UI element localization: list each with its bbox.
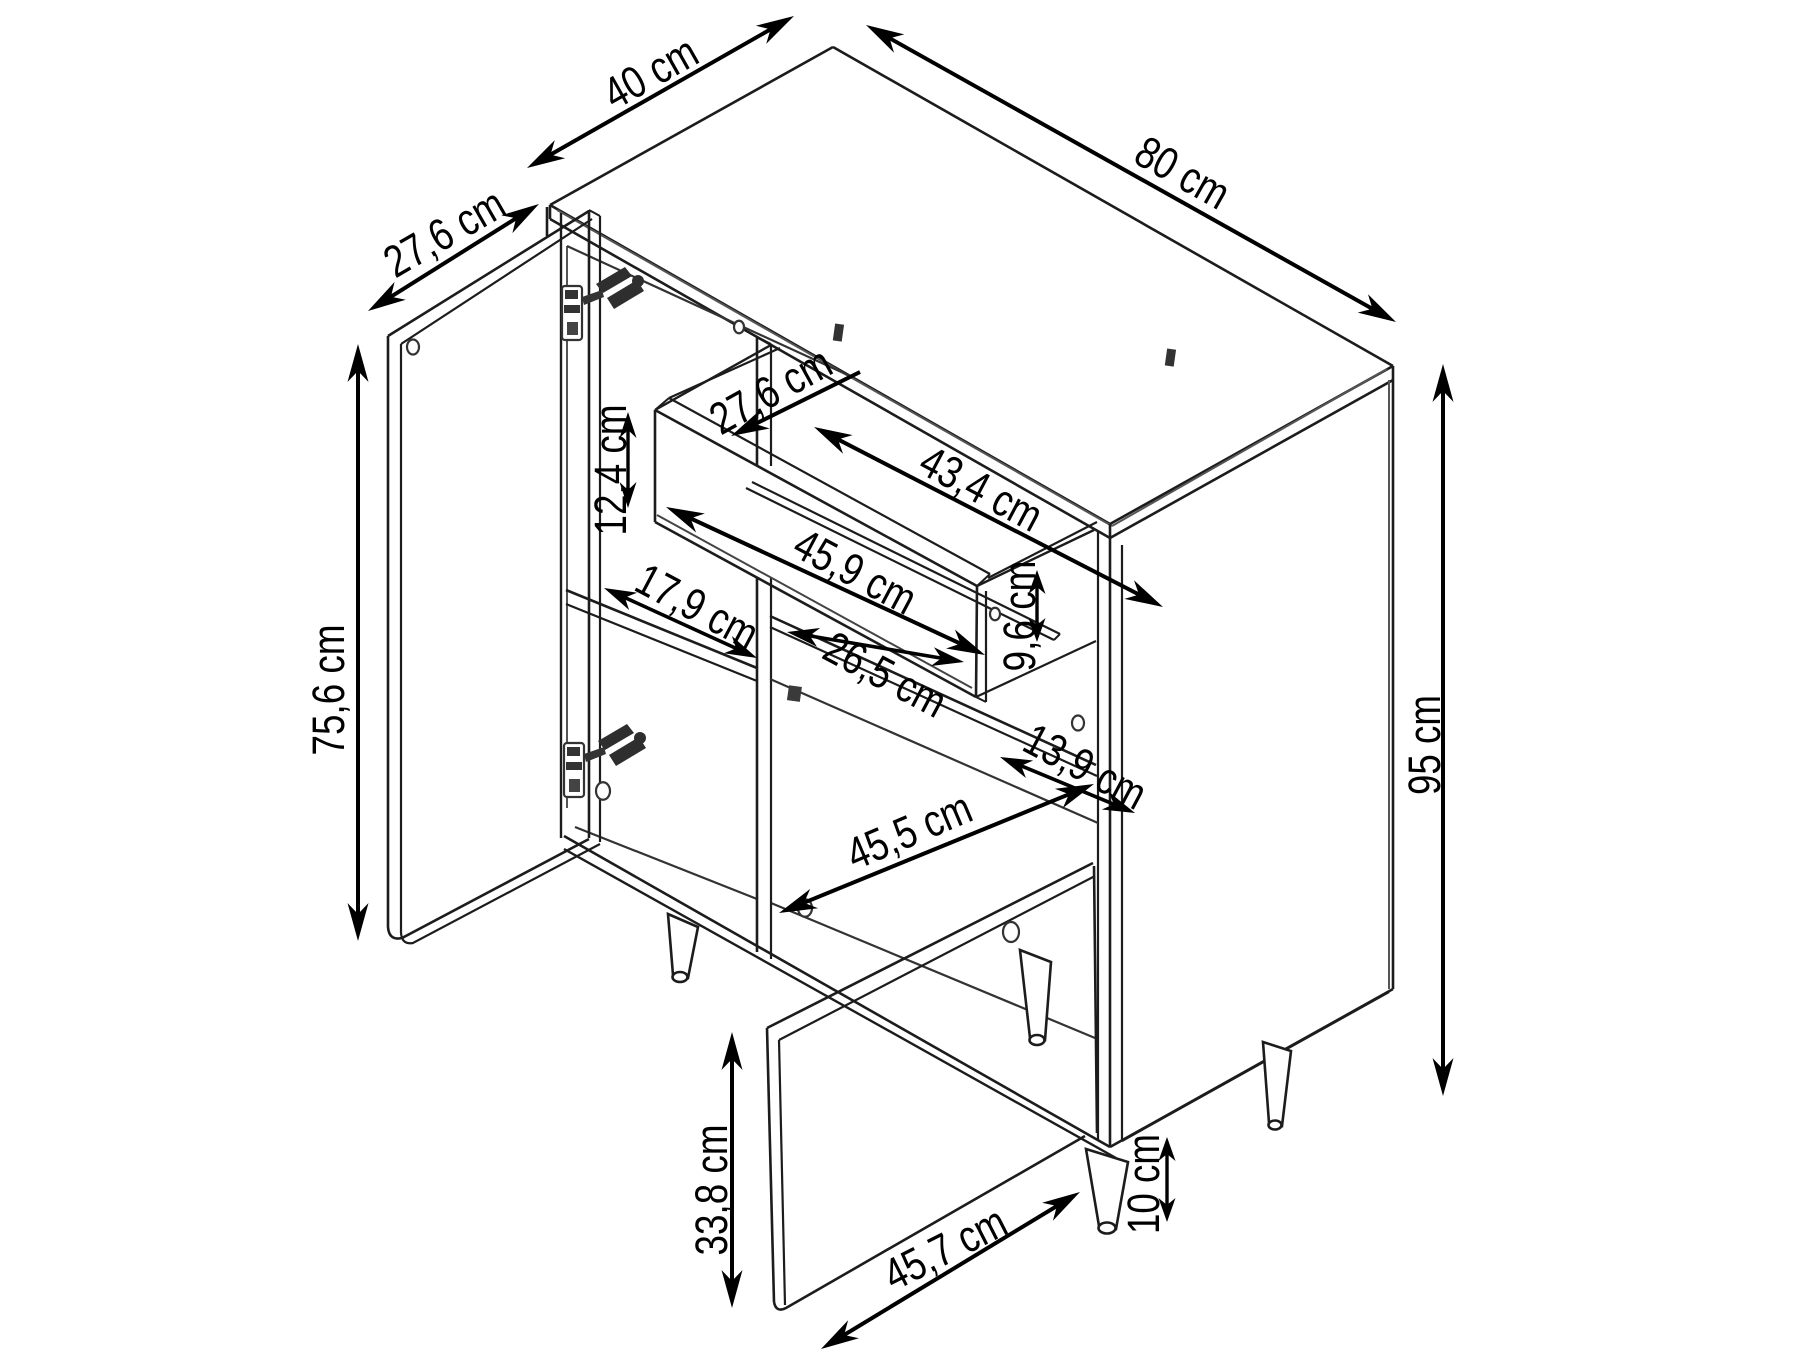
svg-text:33,8 cm: 33,8 cm bbox=[686, 1125, 737, 1256]
svg-text:10 cm: 10 cm bbox=[1118, 1134, 1169, 1234]
svg-text:9,6 cm: 9,6 cm bbox=[994, 561, 1045, 672]
svg-text:95 cm: 95 cm bbox=[1399, 695, 1450, 795]
svg-text:12,4 cm: 12,4 cm bbox=[585, 405, 636, 536]
svg-text:75,6 cm: 75,6 cm bbox=[303, 625, 354, 756]
